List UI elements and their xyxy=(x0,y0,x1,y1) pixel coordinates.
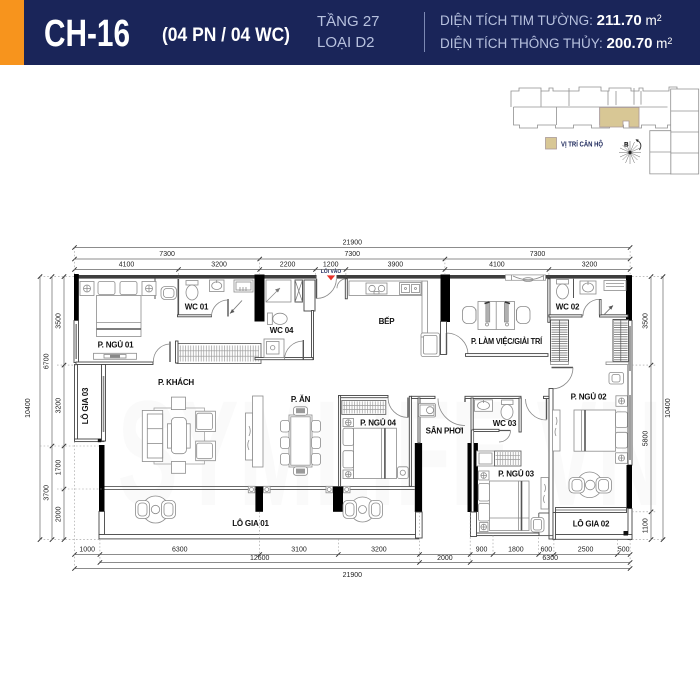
svg-text:3500: 3500 xyxy=(643,313,650,329)
svg-text:2500: 2500 xyxy=(578,547,594,554)
svg-text:3200: 3200 xyxy=(371,547,387,554)
svg-text:WC 04: WC 04 xyxy=(270,326,294,335)
svg-text:WC 01: WC 01 xyxy=(185,303,209,312)
svg-text:WC 02: WC 02 xyxy=(556,303,580,312)
svg-text:P. KHÁCH: P. KHÁCH xyxy=(158,378,194,387)
svg-text:4100: 4100 xyxy=(119,262,135,269)
svg-text:WC 03: WC 03 xyxy=(493,419,517,428)
svg-text:6700: 6700 xyxy=(44,353,51,369)
svg-text:LOẠI D2: LOẠI D2 xyxy=(317,34,375,51)
svg-text:LÔ GIA 03: LÔ GIA 03 xyxy=(81,387,90,424)
svg-text:B: B xyxy=(624,142,629,149)
svg-text:3100: 3100 xyxy=(291,547,307,554)
svg-text:7300: 7300 xyxy=(530,251,546,258)
svg-text:600: 600 xyxy=(540,547,552,554)
svg-text:500: 500 xyxy=(618,547,630,554)
svg-text:3500: 3500 xyxy=(56,313,63,329)
svg-text:3200: 3200 xyxy=(211,262,227,269)
svg-text:3200: 3200 xyxy=(582,262,598,269)
svg-text:10400: 10400 xyxy=(665,398,672,418)
svg-text:2200: 2200 xyxy=(280,262,296,269)
svg-text:1100: 1100 xyxy=(643,518,650,533)
svg-text:10400: 10400 xyxy=(25,398,32,418)
svg-text:2000: 2000 xyxy=(56,506,63,522)
svg-text:6300: 6300 xyxy=(542,555,558,562)
svg-text:LÔ GIA 01: LÔ GIA 01 xyxy=(232,519,269,528)
svg-text:3900: 3900 xyxy=(388,262,404,269)
svg-text:P. NGỦ 02: P. NGỦ 02 xyxy=(571,393,608,402)
svg-text:5800: 5800 xyxy=(643,431,650,447)
svg-text:LỐI VÀO: LỐI VÀO xyxy=(321,268,342,275)
svg-text:P. LÀM VIỆC/GIẢI TRÍ: P. LÀM VIỆC/GIẢI TRÍ xyxy=(471,337,543,346)
svg-text:3200: 3200 xyxy=(56,398,63,414)
svg-text:VỊ TRÍ CĂN HỘ: VỊ TRÍ CĂN HỘ xyxy=(561,140,603,149)
svg-text:1800: 1800 xyxy=(508,547,524,554)
svg-text:(04 PN / 04 WC): (04 PN / 04 WC) xyxy=(162,25,290,46)
svg-text:12600: 12600 xyxy=(250,555,270,562)
svg-text:21900: 21900 xyxy=(343,572,363,579)
svg-text:900: 900 xyxy=(476,547,488,554)
svg-text:1200: 1200 xyxy=(323,262,339,269)
svg-text:CH-16: CH-16 xyxy=(44,13,130,55)
svg-text:P. NGỦ 01: P. NGỦ 01 xyxy=(98,341,135,350)
svg-text:7300: 7300 xyxy=(345,251,361,258)
svg-text:1000: 1000 xyxy=(79,547,95,554)
svg-text:1700: 1700 xyxy=(56,460,63,476)
svg-text:4100: 4100 xyxy=(489,262,505,269)
svg-text:DIỆN TÍCH TIM TƯỜNG: 211.70 m2: DIỆN TÍCH TIM TƯỜNG: 211.70 m2 xyxy=(440,12,662,29)
svg-text:21900: 21900 xyxy=(343,240,363,247)
svg-text:P. ĂN: P. ĂN xyxy=(291,395,311,404)
svg-text:BẾP: BẾP xyxy=(379,316,396,326)
svg-text:TẦNG 27: TẦNG 27 xyxy=(317,13,380,30)
svg-text:7300: 7300 xyxy=(159,251,175,258)
svg-text:2000: 2000 xyxy=(437,555,453,562)
svg-text:3700: 3700 xyxy=(44,485,51,501)
svg-text:LÔ GIA 02: LÔ GIA 02 xyxy=(573,520,610,529)
svg-text:SÂN PHƠI: SÂN PHƠI xyxy=(426,427,464,436)
svg-text:P. NGỦ 04: P. NGỦ 04 xyxy=(360,419,397,428)
svg-text:6300: 6300 xyxy=(172,547,188,554)
svg-text:P. NGỦ 03: P. NGỦ 03 xyxy=(498,470,535,479)
svg-text:DIỆN TÍCH THÔNG THỦY: 200.70 m: DIỆN TÍCH THÔNG THỦY: 200.70 m2 xyxy=(440,35,672,52)
